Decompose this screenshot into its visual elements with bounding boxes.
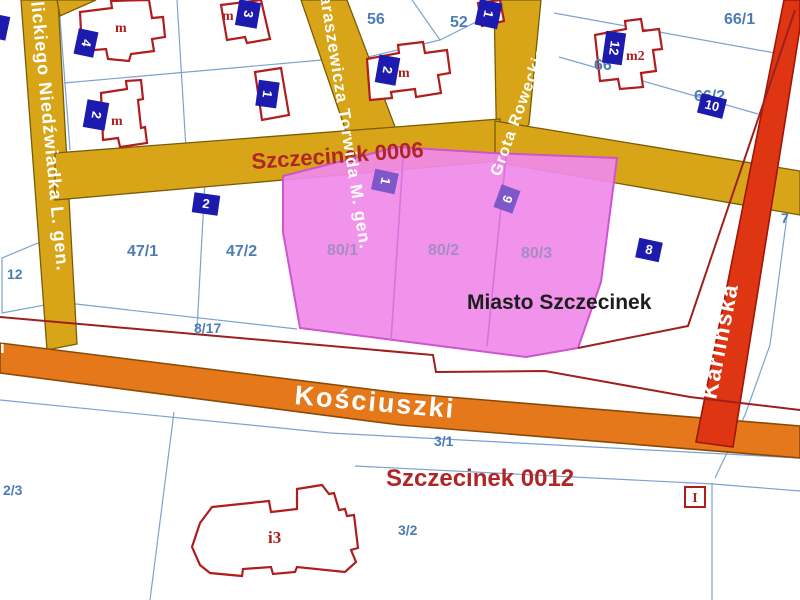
building-badge: 1 [255,80,279,109]
parcel-label-2-3: 2/3 [3,482,23,498]
building-mark: m [398,66,410,81]
parcel-label-3-1: 3/1 [434,433,454,449]
info-badge: I [685,487,705,507]
parcel-label-80-3: 80/3 [521,245,552,262]
parcel-label-52: 52 [450,14,468,31]
building-mark: m2 [626,49,645,64]
building-mark: m [115,21,127,36]
cadastral-map-canvas[interactable]: m m m m m2 i3 56 52 66/1 66 66/2 7 47/1 … [0,0,800,600]
building-mark-i3: i3 [268,528,281,547]
building-mark: m [111,114,123,129]
building-mark: m [222,9,234,24]
parcel-label-12: 12 [7,266,23,282]
building-badge: 3 [235,0,261,29]
parcel-label-56: 56 [367,11,385,28]
parcel-label-8-17: 8/17 [194,320,221,336]
parcel-label-47-2: 47/2 [226,243,257,260]
parcel-label-80-1: 80/1 [327,242,358,259]
parcel-label-3-2: 3/2 [398,522,418,538]
street-label-stub: i [0,338,6,357]
svg-text:12: 12 [606,40,623,56]
parcel-label-80-2: 80/2 [428,242,459,259]
district-label-0012: Szczecinek 0012 [386,465,574,492]
city-label: Miasto Szczecinek [467,291,652,314]
parcel-label-47-1: 47/1 [127,243,158,260]
building-badge: 2 [192,192,221,215]
svg-text:I: I [692,491,697,506]
map-svg[interactable]: m m m m m2 i3 56 52 66/1 66 66/2 7 47/1 … [0,0,800,600]
parcel-label-66-1: 66/1 [724,11,755,28]
parcel-label-7: 7 [781,210,789,226]
